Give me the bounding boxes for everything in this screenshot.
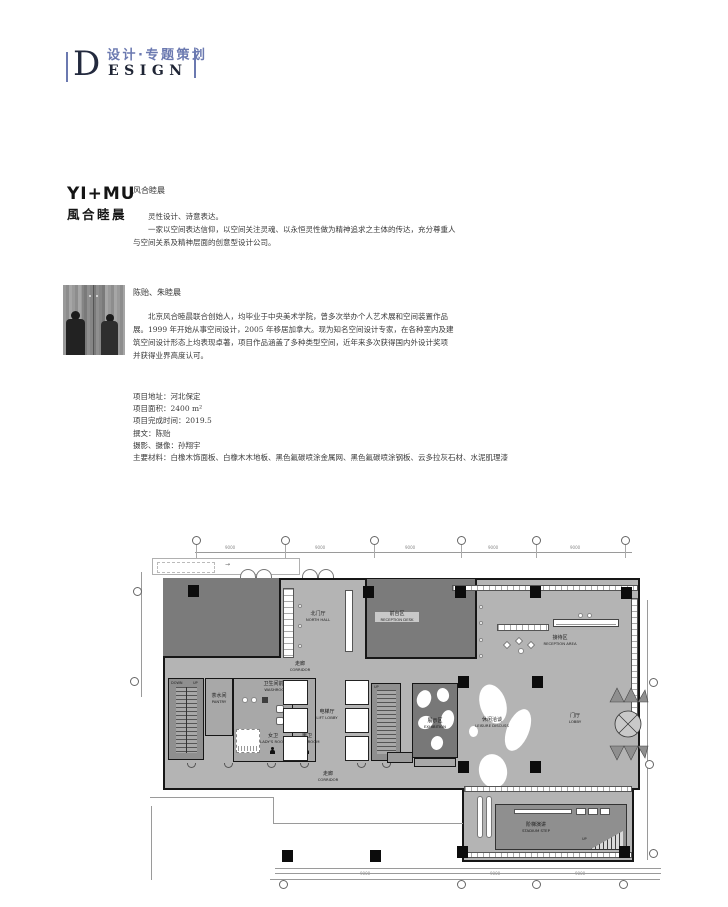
person-body [66,319,85,355]
column [532,676,543,688]
bench [600,808,610,815]
grid-bubble [133,587,142,596]
lift-lobby-label: 电梯厅 LIFT LOBBY [310,710,344,720]
desk-line [556,624,616,625]
reception-desk [345,590,353,652]
column [188,585,199,597]
canopy-dashed [157,562,215,573]
door-handle [96,295,98,297]
bench [576,808,586,815]
designers-section-title: 陈贻、朱睦晨 [133,287,181,298]
dimension-text: 9000 [488,546,498,550]
column-dot [298,644,302,648]
storage-closet [236,729,260,753]
dimension-line [270,879,660,880]
floor-plan: 9000 9000 9000 9000 9000 9000 9000 9000 … [130,528,670,907]
plaza-line [273,797,274,824]
revolving-door-icon [608,686,652,762]
column [363,586,374,598]
entry-door-arch [256,569,272,578]
elevator-car [345,736,369,761]
door-gap [93,285,94,355]
dimension-text: 9000 [225,546,235,550]
pantry-room [205,678,233,736]
grid-tick [196,545,197,558]
column [621,587,632,599]
column-dot [298,604,302,608]
niche-wall [283,588,294,658]
exhibition-label: 展示区 EXHIBITION [416,719,454,729]
column-dot [479,654,483,658]
service-room [387,752,413,763]
studio-logo-cn: 風合睦晨 [67,204,127,223]
column [619,846,630,858]
plaza-line [273,823,463,824]
plaza-line [275,873,661,874]
plaza-line [275,868,661,869]
person-symbol [270,750,275,754]
column-dot [479,605,483,609]
elevator-car [345,680,369,705]
entrance-canopy: → [152,558,300,575]
elevator-car [283,680,308,705]
stool [587,613,592,618]
grid-tick [374,545,375,558]
column [457,846,468,858]
reception-area-label: 接待区 RECEPTION AREA [538,636,582,646]
shelf-wall [452,585,638,591]
grid-bubble [370,536,379,545]
header-cn-title: 设计·专题策划 [107,44,207,63]
table [518,648,524,654]
column-dot [479,621,483,625]
project-address: 项目地址：河北保定 [133,391,508,403]
studio-intro-line1: 灵性设计、诗意表达。 [133,210,458,223]
dimension-text: 9000 [570,546,580,550]
header-left-bar [66,52,68,82]
grid-bubble [457,536,466,545]
grid-bubble [649,849,658,858]
grid-bubble [130,677,139,686]
stair-up-label: UP [193,681,198,685]
studio-section-title: 风合睦晨 [133,185,165,196]
grid-bubble [279,880,288,889]
entry-door-arch [302,569,318,578]
column-dot [298,624,302,628]
hatch [238,746,258,751]
magazine-page: D 设计·专题策划 ESIGN YI+MU 風合睦晨 风合睦晨 灵性设计、诗意表… [0,0,728,907]
lobby-label: 门厅 LOBBY [555,714,595,724]
grid-tick [461,545,462,558]
stair-up-label: UP [582,837,587,841]
project-area: 项目面积：2400 m² [133,403,508,415]
stair-divider [186,687,187,753]
north-hall-label: 北门厅 NORTH HALL [298,612,338,622]
window-band [464,786,632,792]
window-band [464,852,632,858]
planter [477,796,483,838]
leisure-label: 休闲洽谈 LEISURE DISCUSS [472,718,512,728]
stadium-label: 阶梯演讲 STADIUM STEP [506,823,566,833]
header-right-bar [194,50,196,78]
planter [486,796,492,838]
stadium-room: 阶梯演讲 STADIUM STEP UP [495,804,627,850]
door-handle [89,295,91,297]
design-wordmark: ESIGN [108,63,188,79]
fixture [262,697,268,703]
dimension-line [195,552,632,553]
studio-logo-en: YI+MU [67,184,136,204]
direction-arrow-icon: → [225,561,230,568]
column [530,586,541,598]
elevator-car [283,736,308,761]
bench [588,808,598,815]
grid-bubble [621,536,630,545]
stair-down-label: DOWN [171,681,183,685]
staircase-east: UP [371,683,401,761]
studio-intro: 灵性设计、诗意表达。 一家以空间表达信仰，以空间关注灵魂、以永恒灵性做为精神追求… [133,210,458,249]
exhibit-blob [429,735,444,752]
designers-photo [63,285,125,355]
designers-bio-text: 北京风合睦晨联合创始人，均毕业于中央美术学院，曾多次举办个人艺术展和空间装置作品… [133,310,455,362]
stool [578,613,583,618]
exhibition-room: 展示区 EXHIBITION [412,683,458,758]
grid-tick [625,545,626,558]
stair-treads [377,690,396,754]
design-initial: D [73,47,100,81]
bench-row [497,624,549,631]
project-date: 项目完成时间：2019.5 [133,415,508,427]
plaza-line [150,797,274,798]
dimension-text: 9000 [315,546,325,550]
column [530,761,541,773]
entry-door-arch [240,569,256,578]
corridor-label-lower: 走廊 CORRIDOR [308,772,348,782]
plaza-column [282,850,293,862]
room-northwest [163,578,281,658]
exhibition-step [414,758,456,767]
dimension-text: 9000 [405,546,415,550]
reception-desk-label: 前台区 RECEPTION DESK [375,612,419,622]
grid-tick [536,545,537,558]
project-writer: 撰文：陈贻 [133,428,508,440]
project-photographer: 摄影、摄像：孙翔宇 [133,440,508,452]
project-details: 项目地址：河北保定 项目面积：2400 m² 项目完成时间：2019.5 撰文：… [133,391,508,464]
bench [514,809,572,814]
grid-bubble [619,880,628,889]
elevator-car [283,708,308,733]
corridor-label-upper: 走廊 CORRIDOR [280,662,320,672]
column [458,676,469,688]
column [455,586,466,598]
grid-bubble [457,880,466,889]
grid-bubble [532,536,541,545]
grid-bubble [281,536,290,545]
staircase-west: DOWN UP [168,678,204,760]
grid-bubble [192,536,201,545]
project-materials: 主要材料：白橡木饰面板、白橡木木地板、黑色氟碳喷涂金属网、黑色氟碳喷涂钢板、云多… [133,452,508,464]
sink [251,697,257,703]
grid-bubble [532,880,541,889]
sink [242,697,248,703]
long-desk [553,619,619,627]
column [458,761,469,773]
pantry-label: 茶水间 PANTRY [203,694,235,704]
stair-up-label: UP [374,685,379,689]
exhibit-blob [435,687,450,704]
grid-tick [285,545,286,558]
column-dot [479,638,483,642]
elevator-car [345,708,369,733]
person-body [101,321,118,355]
plaza-line [151,806,152,880]
studio-intro-line2: 一家以空间表达信仰，以空间关注灵魂、以永恒灵性做为精神追求之主体的传达，充分尊重… [133,223,458,249]
entry-door-arch [318,569,334,578]
exhibit-blob [414,688,433,710]
plaza-column [370,850,381,862]
designers-bio: 北京风合睦晨联合创始人，均毕业于中央美术学院，曾多次举办个人艺术展和空间装置作品… [133,310,455,362]
